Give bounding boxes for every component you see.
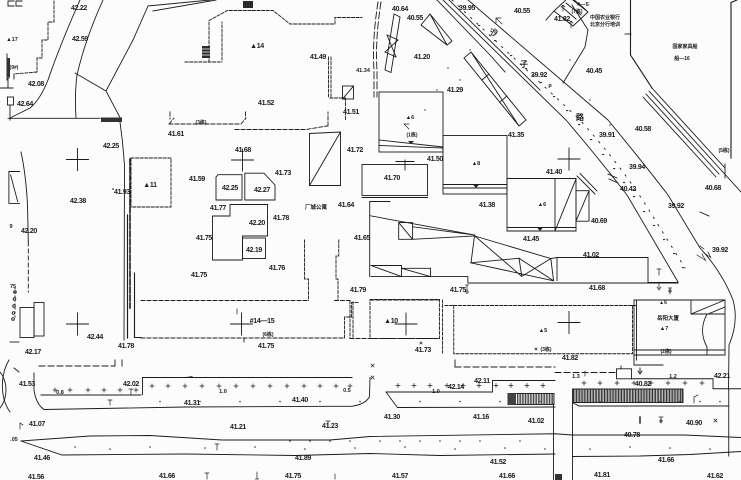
- svg-text:42.21: 42.21: [714, 373, 730, 380]
- svg-text:40.90: 40.90: [686, 420, 702, 427]
- svg-text:41.35: 41.35: [508, 132, 524, 139]
- svg-text:41.66: 41.66: [658, 457, 674, 464]
- svg-text:41.50: 41.50: [427, 156, 443, 163]
- svg-text:42.02: 42.02: [123, 381, 139, 388]
- svg-text:▲6: ▲6: [406, 115, 415, 121]
- svg-text:41.75: 41.75: [258, 343, 274, 350]
- svg-text:42.25: 42.25: [222, 185, 238, 192]
- svg-text:0.5: 0.5: [343, 388, 351, 394]
- svg-text:41.02: 41.02: [528, 418, 544, 425]
- svg-text:41.29: 41.29: [447, 87, 463, 94]
- svg-text:0.8: 0.8: [56, 390, 64, 396]
- svg-text:41.62: 41.62: [707, 473, 723, 480]
- svg-text:41.23: 41.23: [322, 423, 338, 430]
- svg-text:北京分行培训: 北京分行培训: [590, 21, 620, 28]
- svg-text:▲10: ▲10: [384, 318, 398, 325]
- svg-text:41.79: 41.79: [350, 287, 366, 294]
- svg-text:厂城公寓: 厂城公寓: [305, 203, 328, 211]
- svg-text:41.81: 41.81: [594, 472, 610, 479]
- svg-text:41.16: 41.16: [473, 414, 489, 421]
- svg-text:41.65: 41.65: [354, 235, 370, 242]
- svg-text:(5栋): (5栋): [718, 147, 729, 154]
- svg-text:41.82: 41.82: [554, 16, 570, 23]
- svg-text:1.0: 1.0: [219, 389, 227, 395]
- svg-text:40.42: 40.42: [620, 186, 636, 193]
- svg-text:▲8: ▲8: [472, 161, 481, 167]
- svg-text:42.59: 42.59: [72, 36, 88, 43]
- svg-text:42.22: 42.22: [71, 5, 87, 12]
- svg-text:#14—15: #14—15: [250, 318, 275, 325]
- svg-text:41.40: 41.40: [546, 169, 562, 176]
- svg-text:41.40: 41.40: [292, 397, 308, 404]
- svg-text:路: 路: [576, 112, 585, 122]
- svg-text:41.52: 41.52: [258, 100, 274, 107]
- svg-text:42.20: 42.20: [21, 228, 37, 235]
- svg-text:41.77: 41.77: [210, 205, 226, 212]
- svg-text:41.82: 41.82: [562, 355, 578, 362]
- svg-text:42.14: 42.14: [448, 384, 464, 391]
- svg-text:41.72: 41.72: [347, 147, 363, 154]
- svg-text:41.07: 41.07: [29, 421, 45, 428]
- svg-text:国家家具船: 国家家具船: [672, 43, 697, 50]
- svg-text:41.64: 41.64: [338, 202, 354, 209]
- svg-text:40.78: 40.78: [624, 432, 640, 439]
- svg-text:41.56: 41.56: [28, 474, 44, 480]
- svg-text:41.73: 41.73: [275, 170, 291, 177]
- svg-text:(7栋): (7栋): [571, 8, 582, 15]
- svg-text:(9#): (9#): [10, 65, 19, 71]
- svg-text:41.02: 41.02: [583, 252, 599, 259]
- svg-text:41.45: 41.45: [523, 236, 539, 243]
- svg-text:41.68: 41.68: [589, 285, 605, 292]
- svg-text:40.64: 40.64: [392, 6, 408, 13]
- svg-text:岳阳大厦: 岳阳大厦: [657, 314, 680, 322]
- svg-text:42.38: 42.38: [70, 198, 86, 205]
- svg-text:▲6: ▲6: [538, 202, 547, 208]
- svg-text:41.21: 41.21: [230, 424, 246, 431]
- svg-text:41.75: 41.75: [191, 272, 207, 279]
- svg-text:41.70: 41.70: [384, 175, 400, 182]
- svg-text:41.46: 41.46: [34, 455, 50, 462]
- svg-text:41.31: 41.31: [184, 400, 200, 407]
- svg-text:▲14: ▲14: [250, 43, 264, 50]
- svg-text:41.75: 41.75: [196, 235, 212, 242]
- svg-text:39.92: 39.92: [712, 247, 728, 254]
- svg-text:#—5: #—5: [577, 2, 589, 8]
- svg-text:1.0: 1.0: [432, 389, 440, 395]
- svg-text:40.82: 40.82: [635, 381, 651, 388]
- svg-text:9: 9: [9, 224, 12, 230]
- svg-text:42.11: 42.11: [474, 378, 490, 385]
- svg-text:39.92: 39.92: [531, 72, 547, 79]
- svg-text:41.53: 41.53: [19, 381, 35, 388]
- svg-text:42.17: 42.17: [25, 349, 41, 356]
- svg-text:41.68: 41.68: [235, 147, 251, 154]
- svg-text:沙: 沙: [490, 28, 498, 37]
- svg-text:41.76: 41.76: [269, 265, 285, 272]
- svg-text:41.61: 41.61: [168, 131, 184, 138]
- svg-text:40.45: 40.45: [586, 68, 602, 75]
- svg-text:40.55: 40.55: [407, 15, 423, 22]
- svg-text:41.89: 41.89: [295, 455, 311, 462]
- svg-text:(2栋): (2栋): [660, 348, 671, 355]
- svg-text:41.78: 41.78: [273, 215, 289, 222]
- svg-text:41.75: 41.75: [285, 473, 301, 480]
- svg-text:▲5: ▲5: [539, 328, 548, 334]
- svg-text:39.92: 39.92: [668, 203, 684, 210]
- svg-text:▲6: ▲6: [659, 300, 667, 306]
- svg-text:41.57: 41.57: [392, 473, 408, 480]
- svg-text:42.25: 42.25: [103, 143, 119, 150]
- svg-text:40.58: 40.58: [635, 126, 651, 133]
- svg-text:.05: .05: [10, 437, 18, 443]
- svg-text:子: 子: [520, 60, 528, 69]
- svg-text:41.59: 41.59: [189, 176, 205, 183]
- svg-text:40.69: 40.69: [591, 218, 607, 225]
- svg-text:40.55: 40.55: [514, 8, 530, 15]
- svg-text:中国农业银行: 中国农业银行: [590, 14, 620, 21]
- svg-text:41.38: 41.38: [479, 202, 495, 209]
- svg-text:41.75: 41.75: [450, 287, 466, 294]
- svg-text:▲17: ▲17: [6, 37, 18, 43]
- svg-text:42.64: 42.64: [17, 101, 33, 108]
- svg-text:▲7: ▲7: [660, 326, 669, 332]
- svg-text:(1栋): (1栋): [406, 132, 417, 139]
- svg-text:(6栋): (6栋): [262, 331, 273, 338]
- svg-text:(3栋): (3栋): [195, 119, 206, 126]
- svg-text:船—16: 船—16: [674, 55, 690, 62]
- svg-text:42.44: 42.44: [87, 334, 103, 341]
- svg-text:41.66: 41.66: [159, 473, 175, 480]
- svg-text:41.66: 41.66: [499, 473, 515, 480]
- svg-text:1.3: 1.3: [572, 374, 580, 380]
- svg-text:39.91: 39.91: [599, 132, 615, 139]
- svg-text:41.49: 41.49: [310, 54, 326, 61]
- svg-text:42.19: 42.19: [246, 247, 262, 254]
- svg-text:75: 75: [10, 284, 16, 290]
- svg-text:42.27: 42.27: [254, 187, 270, 194]
- svg-text:39.94: 39.94: [629, 164, 645, 171]
- svg-text:˚41.93: ˚41.93: [112, 188, 130, 196]
- svg-text:41.52: 41.52: [490, 459, 506, 466]
- svg-text:41.73: 41.73: [415, 347, 431, 354]
- svg-text:42.20: 42.20: [249, 220, 265, 227]
- svg-text:42.08: 42.08: [28, 81, 44, 88]
- svg-text:41.30: 41.30: [384, 414, 400, 421]
- svg-text:41.51: 41.51: [343, 109, 359, 116]
- svg-text:1.2: 1.2: [669, 374, 677, 380]
- svg-text:▲11: ▲11: [143, 182, 157, 189]
- svg-text:(3栋): (3栋): [540, 346, 551, 353]
- svg-text:39.95: 39.95: [459, 5, 475, 12]
- svg-text:41.34: 41.34: [356, 68, 371, 74]
- svg-text:41.78: 41.78: [118, 343, 134, 350]
- svg-text:41.20: 41.20: [414, 54, 430, 61]
- svg-text:40.68: 40.68: [705, 185, 721, 192]
